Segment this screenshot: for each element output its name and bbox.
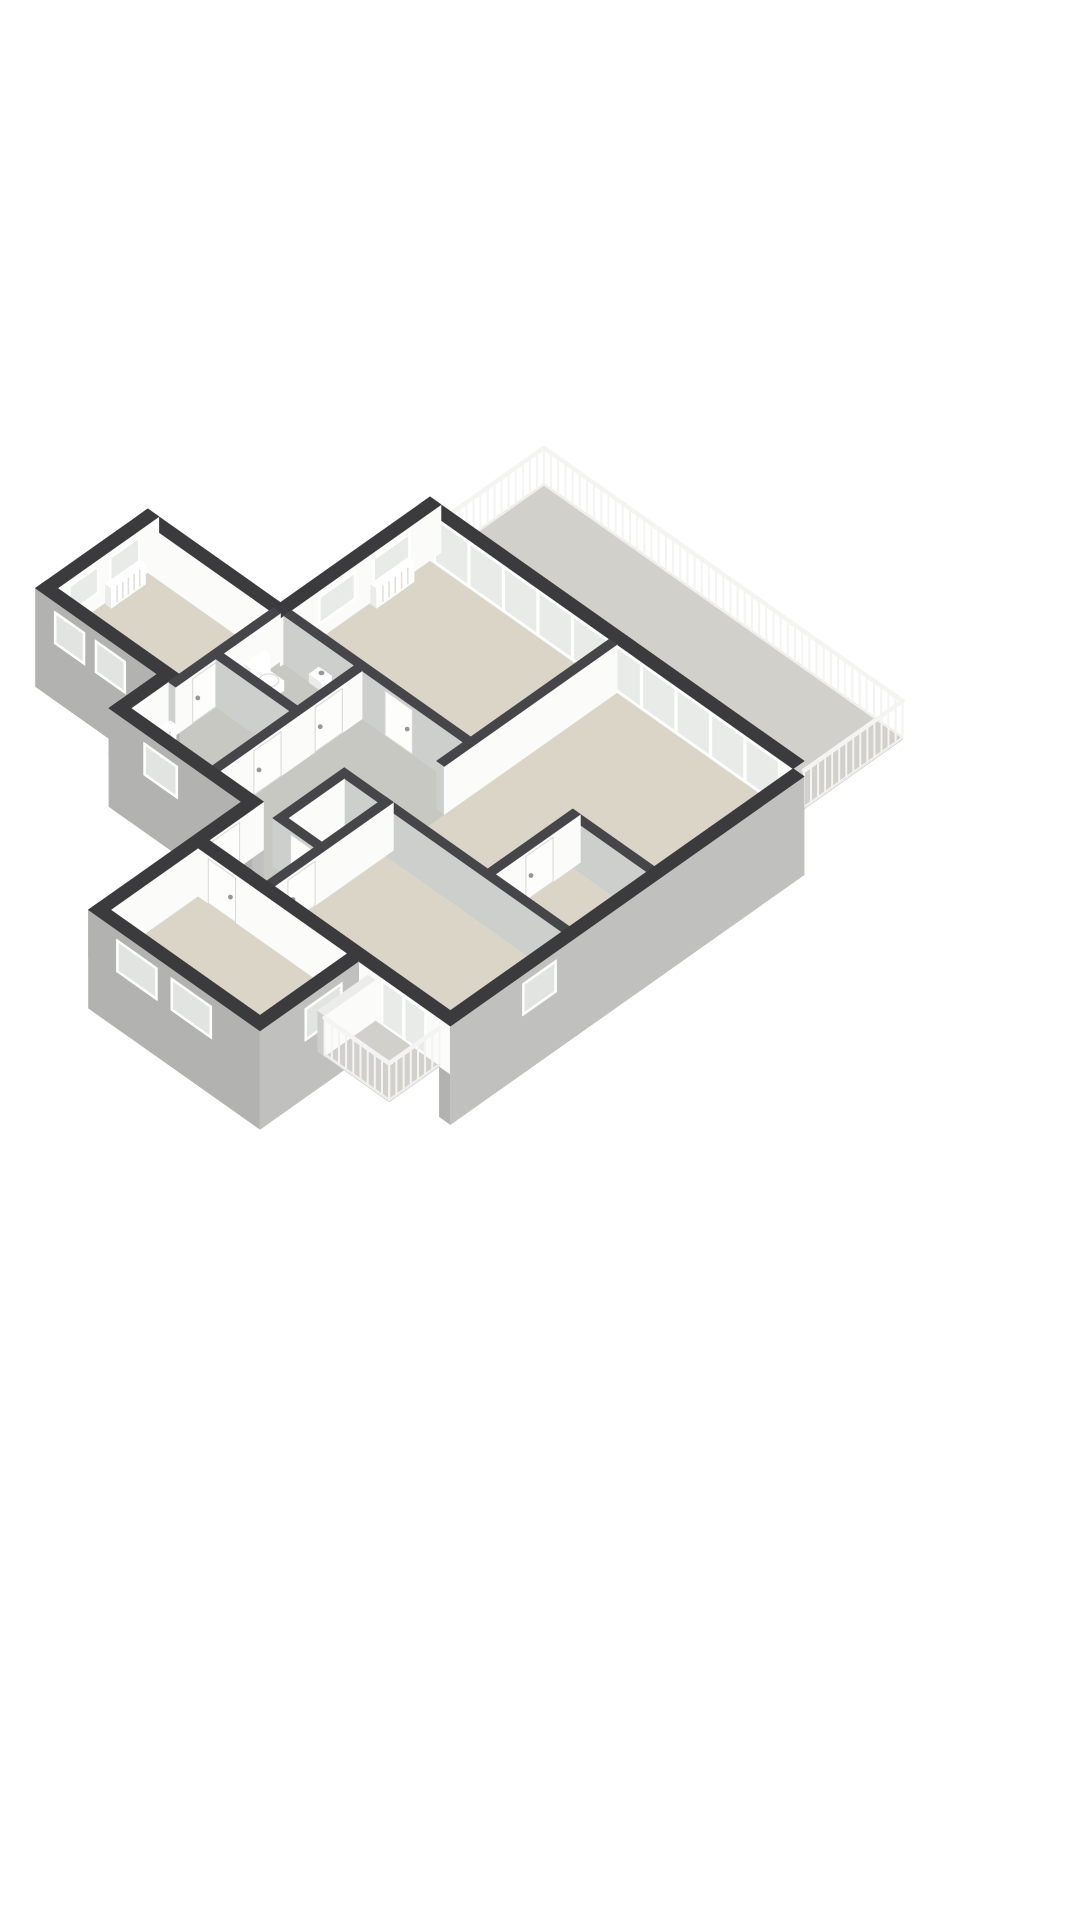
door-bedroom3-handle — [228, 895, 233, 900]
basin-tap — [319, 671, 324, 675]
storage-wall-west-face-sw — [273, 818, 281, 871]
door-bathroom-handle — [257, 768, 262, 773]
floorplan-stage — [0, 0, 1080, 1920]
wall-sw-bedroom2-face-se — [450, 1018, 461, 1074]
door-sitting-room-handle — [405, 727, 410, 732]
floorplan-3d-view — [0, 0, 1080, 1920]
door-wc-handle — [318, 724, 323, 729]
door-bedroom1-handle — [195, 696, 200, 701]
wall-sw-wing2-facade-face-se — [260, 1023, 271, 1129]
wall-sitting-living-face-sw — [437, 761, 445, 814]
door-closet-handle — [529, 873, 534, 878]
